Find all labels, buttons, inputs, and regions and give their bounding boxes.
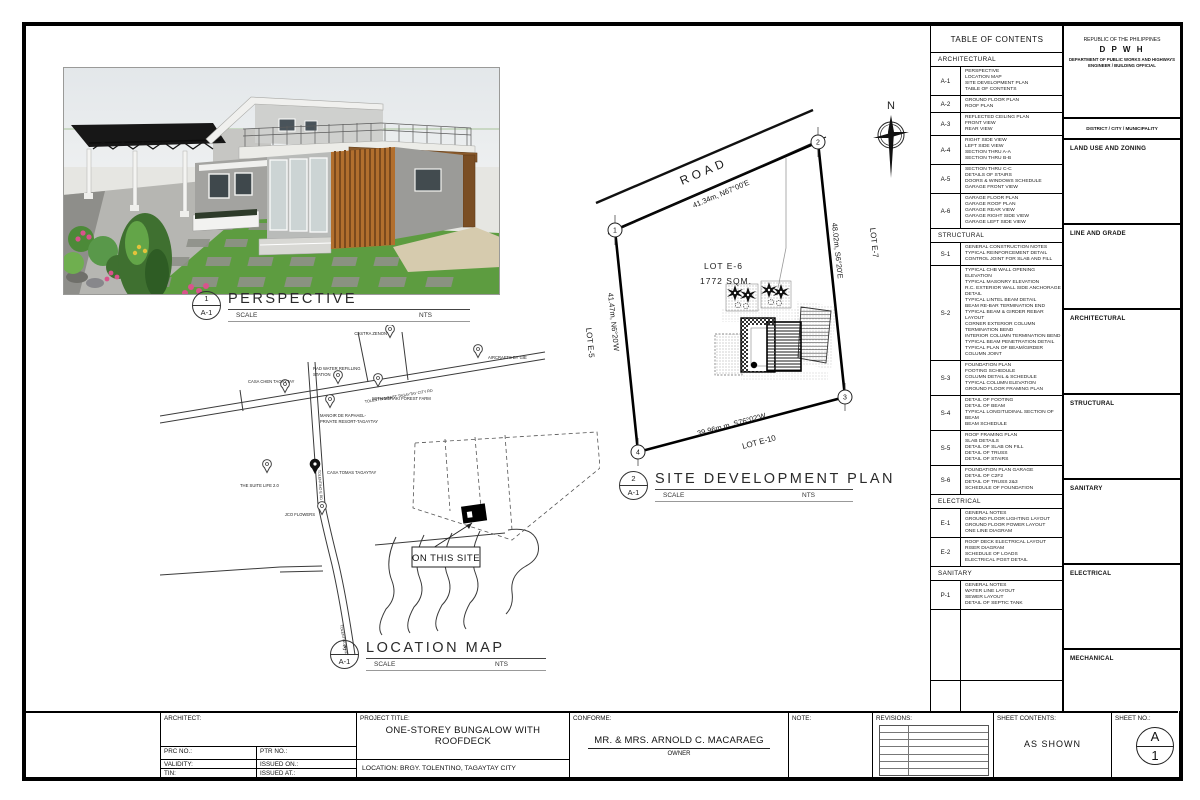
agency-header: REPUBLIC OF THE PHILIPPINES D P W H DEPA…	[1064, 26, 1180, 119]
drawing-name: PERSPECTIVE	[228, 291, 470, 307]
revision-row	[880, 769, 988, 775]
sheet-code: E-2	[931, 538, 961, 566]
sheet-no-label: SHEET NO.:	[1115, 715, 1151, 722]
agency-department: DEPARTMENT OF PUBLIC WORKS AND HIGHWAYS	[1064, 57, 1180, 62]
site-house-cluster	[715, 281, 836, 380]
detail-number: 1	[193, 292, 220, 305]
toc-title: TABLE OF CONTENTS	[931, 26, 1063, 53]
scale-label: SCALE	[663, 492, 684, 499]
sheet-contents-label: SHEET CONTENTS:	[997, 715, 1056, 722]
north-arrow: N	[873, 100, 909, 178]
toc-section-electrical: ELECTRICAL	[931, 495, 1063, 509]
revision-row	[880, 726, 988, 733]
conforme-cell: CONFORME: MR. & MRS. ARNOLD C. MACARAEG …	[570, 713, 789, 777]
pin-label: PRIVATE RESORT-TAGAYTAY	[320, 419, 378, 424]
pin-label: RAD WATER REFILLING	[313, 366, 360, 371]
sheet-code: A-4	[931, 136, 961, 164]
agency-dpwh: D P W H	[1064, 45, 1180, 54]
location-map-title: 3 A-1 LOCATION MAP SCALE NTS	[330, 640, 546, 671]
toc-row: A-4 RIGHT SIDE VIEWLEFT SIDE VIEWSECTION…	[931, 136, 1063, 165]
toc-row: S-2 TYPICAL CHB WALL OPENING ELEVATIONTY…	[931, 266, 1063, 361]
revisions-cell: REVISIONS:	[873, 713, 994, 777]
toc-row: S-5 ROOF FRAMING PLANSLAB DETAILSDETAIL …	[931, 431, 1063, 466]
pin-label: AIRCRAFTS BY GIE	[488, 355, 527, 360]
corner-number: 4	[636, 450, 640, 457]
scale-label: SCALE	[374, 661, 395, 668]
title-block: ARCHITECT: PRC NO.: PTR NO.: VALIDITY: I…	[26, 711, 1178, 777]
perspective-title: 1 A-1 PERSPECTIVE SCALE NTS	[192, 291, 470, 322]
detail-sheet-ref: A-1	[331, 654, 358, 668]
toc-row: A-5 SECTION THRU C-CDETAILS OF STAIRSDOO…	[931, 165, 1063, 194]
sheet-code: E-1	[931, 509, 961, 537]
revision-row	[880, 733, 988, 740]
subdivision-lots	[413, 432, 600, 540]
sheet-items: ROOF FRAMING PLANSLAB DETAILSDETAIL OF S…	[961, 431, 1063, 465]
site-plan-title: 2 A-1 SITE DEVELOPMENT PLAN SCALE NTS	[619, 471, 853, 502]
sheet-code: A-6	[931, 194, 961, 228]
sheet-items: TYPICAL CHB WALL OPENING ELEVATIONTYPICA…	[961, 266, 1063, 360]
lot-area: 1772 SQM.	[700, 276, 752, 286]
map-roads	[160, 332, 545, 655]
toc-row: S-1 GENERAL CONSTRUCTION NOTESTYPICAL RE…	[931, 243, 1063, 266]
architect-cell: ARCHITECT: PRC NO.: PTR NO.: VALIDITY: I…	[161, 713, 357, 777]
revision-row	[880, 747, 988, 754]
sheet-index: 1	[1137, 746, 1173, 765]
signoff-architectural: ARCHITECTURAL	[1064, 310, 1180, 395]
scale-row: SCALE NTS	[366, 659, 546, 671]
sheet-no-cell: SHEET NO.: A 1	[1112, 713, 1178, 777]
sheet-items: GENERAL NOTESGROUND FLOOR LIGHTING LAYOU…	[961, 509, 1063, 537]
toc-row: A-6 GARAGE FLOOR PLANGARAGE ROOF PLANGAR…	[931, 194, 1063, 229]
scale-value: NTS	[419, 312, 432, 319]
detail-marker: 3 A-1	[330, 640, 359, 669]
pin-label: CASTRA ZENON	[354, 331, 387, 336]
sheet-code: A-1	[931, 67, 961, 95]
toc-empty-row	[931, 681, 1063, 711]
scale-row: SCALE NTS	[228, 310, 470, 322]
signoff-line-grade: LINE AND GRADE	[1064, 225, 1180, 310]
sheet-number-badge: A 1	[1136, 727, 1174, 765]
toc-row: S-3 FOUNDATION PLANFOOTING SCHEDULECOLUM…	[931, 361, 1063, 396]
sheet-items: SECTION THRU C-CDETAILS OF STAIRSDOORS &…	[961, 165, 1063, 193]
sheet-code: S-6	[931, 466, 961, 494]
revisions-label: REVISIONS:	[876, 715, 912, 722]
lot-e7-label: LOT E-7	[868, 227, 880, 258]
sheet-code: S-1	[931, 243, 961, 265]
sheet-items: FOUNDATION PLANFOOTING SCHEDULECOLUMN DE…	[961, 361, 1063, 395]
district-box: DISTRICT / CITY / MUNICIPALITY	[1064, 119, 1180, 140]
map-labels: CASTRA ZENON CASA CHEN TAGAYTAY RAD WATE…	[240, 331, 527, 655]
bearing-left: 41.47m, N6°20'W	[606, 292, 621, 352]
toc-row: A-3 REFLECTED CEILING PLANFRONT VIEWREAR…	[931, 113, 1063, 136]
toc-section-sanitary: SANITARY	[931, 567, 1063, 581]
drawing-sheet: 1 A-1 PERSPECTIVE SCALE NTS	[0, 0, 1200, 800]
scale-label: SCALE	[236, 312, 257, 319]
toc-row: A-1 PERSPECTIVELOCATION MAPSITE DEVELOPM…	[931, 67, 1063, 96]
signoff-sanitary: SANITARY	[1064, 480, 1180, 565]
detail-sheet-ref: A-1	[620, 485, 647, 499]
sheet-items: ROOF DECK ELECTRICAL LAYOUTRISER DIAGRAM…	[961, 538, 1063, 566]
lot-e10-label: LOT E-10	[741, 433, 777, 451]
sheet-items: FOUNDATION PLAN GARAGEDETAIL OF C2F2DETA…	[961, 466, 1063, 494]
toc-row: E-1 GENERAL NOTESGROUND FLOOR LIGHTING L…	[931, 509, 1063, 538]
toc-section-architectural: ARCHITECTURAL	[931, 53, 1063, 67]
issued-on-label: ISSUED ON.:	[257, 760, 356, 768]
signoff-mechanical: MECHANICAL	[1064, 650, 1180, 711]
conforme-label: CONFORME:	[573, 715, 611, 722]
sheet-code: S-4	[931, 396, 961, 430]
location-map: ON THIS SITE CASTRA ZENON CASA CHEN TAGA…	[160, 325, 600, 665]
sheet-series: A	[1137, 728, 1173, 746]
toc-row: A-2 GROUND FLOOR PLANROOF PLAN	[931, 96, 1063, 113]
project-title-line1: ONE-STOREY BUNGALOW WITH	[357, 725, 569, 736]
pin-label: CASA CHEN TAGAYTAY	[248, 379, 295, 384]
toc-row: S-6 FOUNDATION PLAN GARAGEDETAIL OF C2F2…	[931, 466, 1063, 495]
sheet-code: A-2	[931, 96, 961, 112]
toc-row: E-2 ROOF DECK ELECTRICAL LAYOUTRISER DIA…	[931, 538, 1063, 567]
pin-label: STATION	[313, 372, 331, 377]
agency-republic: REPUBLIC OF THE PHILIPPINES	[1064, 37, 1180, 43]
project-title-label: PROJECT TITLE:	[360, 715, 410, 722]
signoff-column: REPUBLIC OF THE PHILIPPINES D P W H DEPA…	[1062, 26, 1180, 711]
issued-at-label: ISSUED AT.:	[257, 769, 356, 777]
detail-number: 2	[620, 472, 647, 485]
architect-label: ARCHITECT:	[164, 715, 201, 722]
detail-number: 3	[331, 641, 358, 654]
corner-number: 1	[613, 228, 617, 235]
drawing-name: LOCATION MAP	[366, 640, 546, 656]
tin-label: TIN:	[161, 769, 257, 777]
sheet-code: S-5	[931, 431, 961, 465]
project-location: LOCATION: BRGY. TOLENTINO, TAGAYTAY CITY	[357, 759, 569, 777]
sheet-contents-value: AS SHOWN	[994, 739, 1111, 749]
table-of-contents: TABLE OF CONTENTS ARCHITECTURAL A-1 PERS…	[930, 26, 1063, 711]
bearing-bottom: 39.96m m, S76°02'W	[696, 411, 768, 438]
sheet-code: S-3	[931, 361, 961, 395]
corner-number: 2	[816, 140, 820, 147]
corner-number: 3	[843, 395, 847, 402]
signoff-electrical: ELECTRICAL	[1064, 565, 1180, 650]
on-this-site-tag: ON THIS SITE	[412, 547, 480, 567]
on-this-site-label: ON THIS SITE	[412, 553, 480, 564]
perspective-rendering	[63, 67, 500, 295]
sheet-items: GENERAL NOTESWATER LINE LAYOUTSEWER LAYO…	[961, 581, 1063, 609]
detail-sheet-ref: A-1	[193, 305, 220, 319]
owner-role: OWNER	[570, 751, 788, 757]
sheet-items: REFLECTED CEILING PLANFRONT VIEWREAR VIE…	[961, 113, 1063, 135]
north-label: N	[887, 100, 895, 112]
detail-marker: 2 A-1	[619, 471, 648, 500]
lot-label: LOT E-6	[704, 261, 743, 271]
revisions-table	[879, 725, 989, 776]
site-development-plan: 1 2 3 4 N ROAD 41.34m, N67°00'E 48.02m, …	[578, 93, 926, 478]
revision-row	[880, 740, 988, 747]
note-label: NOTE:	[792, 715, 811, 722]
validity-label: VALIDITY:	[161, 760, 257, 768]
titleblock-empty-cell	[26, 713, 161, 777]
signoff-land-use: LAND USE AND ZONING	[1064, 140, 1180, 225]
ptr-no-label: PTR NO.:	[257, 747, 356, 759]
sheet-items: DETAIL OF FOOTINGDETAIL OF BEAMTYPICAL L…	[961, 396, 1063, 430]
sheet-items: GARAGE FLOOR PLANGARAGE ROOF PLANGARAGE …	[961, 194, 1063, 228]
scale-value: NTS	[495, 661, 508, 668]
lot-e5-label: LOT E-5	[584, 327, 596, 358]
sheet-items: PERSPECTIVELOCATION MAPSITE DEVELOPMENT …	[961, 67, 1063, 95]
owner-name: MR. & MRS. ARNOLD C. MACARAEG	[588, 735, 769, 749]
toc-section-structural: STRUCTURAL	[931, 229, 1063, 243]
sheet-items: RIGHT SIDE VIEWLEFT SIDE VIEWSECTION THR…	[961, 136, 1063, 164]
pin-label: JCO FLOWERS	[285, 512, 315, 517]
revision-row	[880, 755, 988, 762]
toc-empty-row	[931, 610, 1063, 681]
pin-label: MANOIR DE RAPHAEL-	[320, 413, 366, 418]
scale-value: NTS	[802, 492, 815, 499]
road-label: TOLENTINO E RD	[317, 470, 323, 501]
sheet-contents-cell: SHEET CONTENTS: AS SHOWN	[994, 713, 1112, 777]
sheet-items: GENERAL CONSTRUCTION NOTESTYPICAL REINFO…	[961, 243, 1063, 265]
project-title-line2: ROOFDECK	[357, 736, 569, 747]
prc-no-label: PRC NO.:	[161, 747, 257, 759]
pin-label: CASA TOMAS TAGAYTAY	[327, 470, 376, 475]
sheet-items: GROUND FLOOR PLANROOF PLAN	[961, 96, 1063, 112]
sheet-code: S-2	[931, 266, 961, 360]
sheet-code: A-5	[931, 165, 961, 193]
sheet-code: A-3	[931, 113, 961, 135]
revision-row	[880, 762, 988, 769]
toc-row: P-1 GENERAL NOTESWATER LINE LAYOUTSEWER …	[931, 581, 1063, 610]
project-title-cell: PROJECT TITLE: ONE-STOREY BUNGALOW WITH …	[357, 713, 570, 777]
agency-official: ENGINEER / BUILDING OFFICIAL	[1064, 63, 1180, 68]
note-cell: NOTE:	[789, 713, 873, 777]
access-path-line	[778, 158, 786, 288]
detail-marker: 1 A-1	[192, 291, 221, 320]
drawing-name: SITE DEVELOPMENT PLAN	[655, 471, 853, 487]
sheet-code: P-1	[931, 581, 961, 609]
toc-row: S-4 DETAIL OF FOOTINGDETAIL OF BEAMTYPIC…	[931, 396, 1063, 431]
pin-label: THE SUITE LIFE 2.0	[240, 483, 280, 488]
road-edge	[596, 110, 813, 203]
scale-row: SCALE NTS	[655, 490, 853, 502]
signoff-structural: STRUCTURAL	[1064, 395, 1180, 480]
